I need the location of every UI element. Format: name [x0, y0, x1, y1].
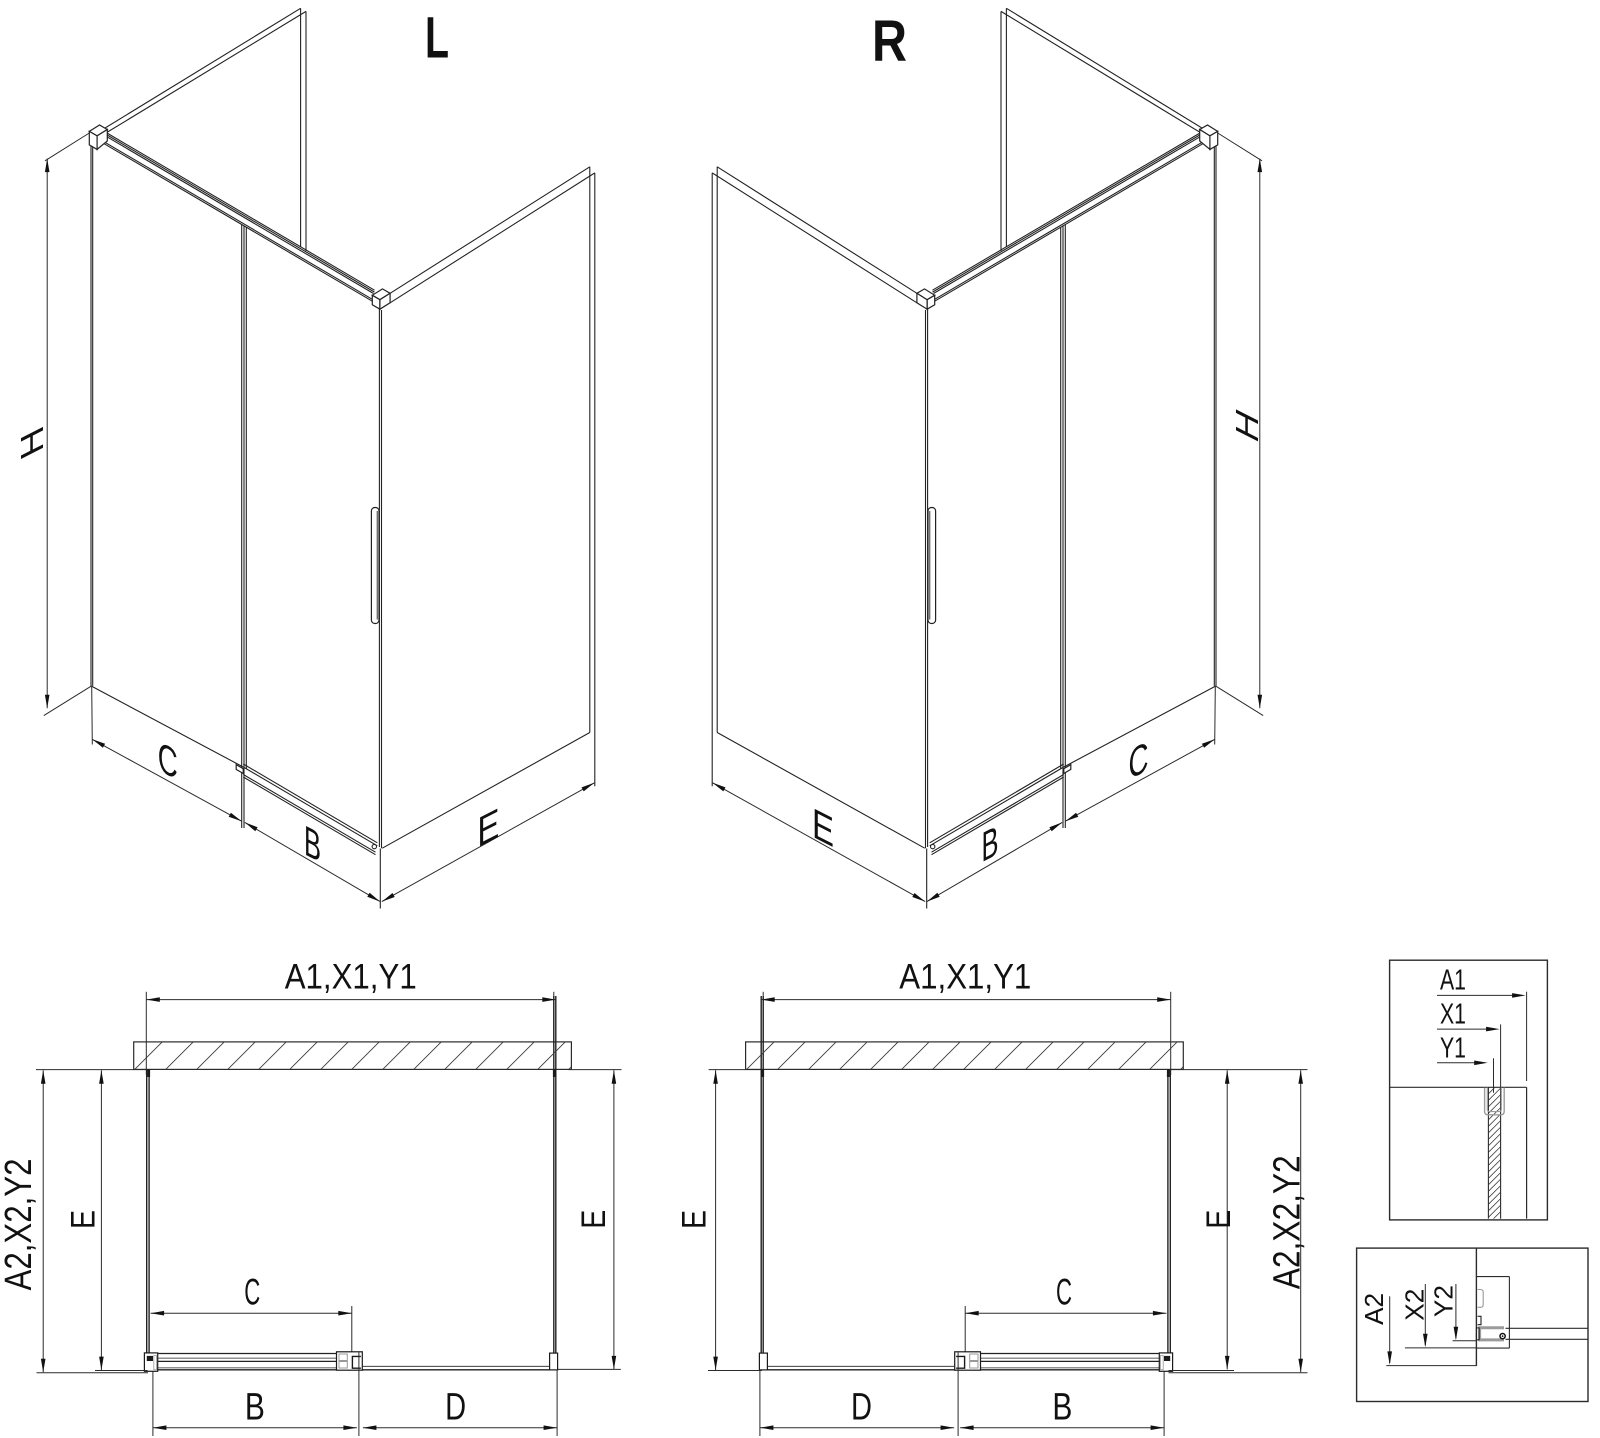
svg-text:Y1: Y1	[1440, 1033, 1466, 1065]
svg-text:E: E	[676, 1210, 714, 1229]
svg-text:B: B	[982, 817, 999, 872]
svg-text:E: E	[1200, 1210, 1238, 1229]
svg-text:C: C	[1056, 1272, 1072, 1313]
svg-text:A2,X2,Y2: A2,X2,Y2	[0, 1159, 40, 1291]
svg-text:X1: X1	[1440, 999, 1466, 1031]
svg-text:E: E	[65, 1210, 103, 1229]
svg-text:B: B	[304, 817, 321, 872]
svg-text:A2,X2,Y2: A2,X2,Y2	[1267, 1155, 1309, 1289]
svg-text:R: R	[872, 9, 907, 74]
svg-text:B: B	[1052, 1387, 1072, 1429]
svg-text:A1,X1,Y1: A1,X1,Y1	[899, 957, 1031, 996]
svg-text:L: L	[425, 5, 449, 70]
svg-text:D: D	[851, 1387, 872, 1429]
svg-text:A1: A1	[1440, 965, 1466, 997]
svg-text:E: E	[575, 1210, 613, 1229]
svg-text:Y2: Y2	[1428, 1285, 1458, 1317]
svg-text:A1,X1,Y1: A1,X1,Y1	[285, 957, 417, 996]
svg-text:A2: A2	[1359, 1293, 1389, 1325]
svg-text:D: D	[445, 1387, 466, 1429]
svg-text:B: B	[245, 1387, 265, 1429]
svg-text:C: C	[244, 1272, 260, 1313]
